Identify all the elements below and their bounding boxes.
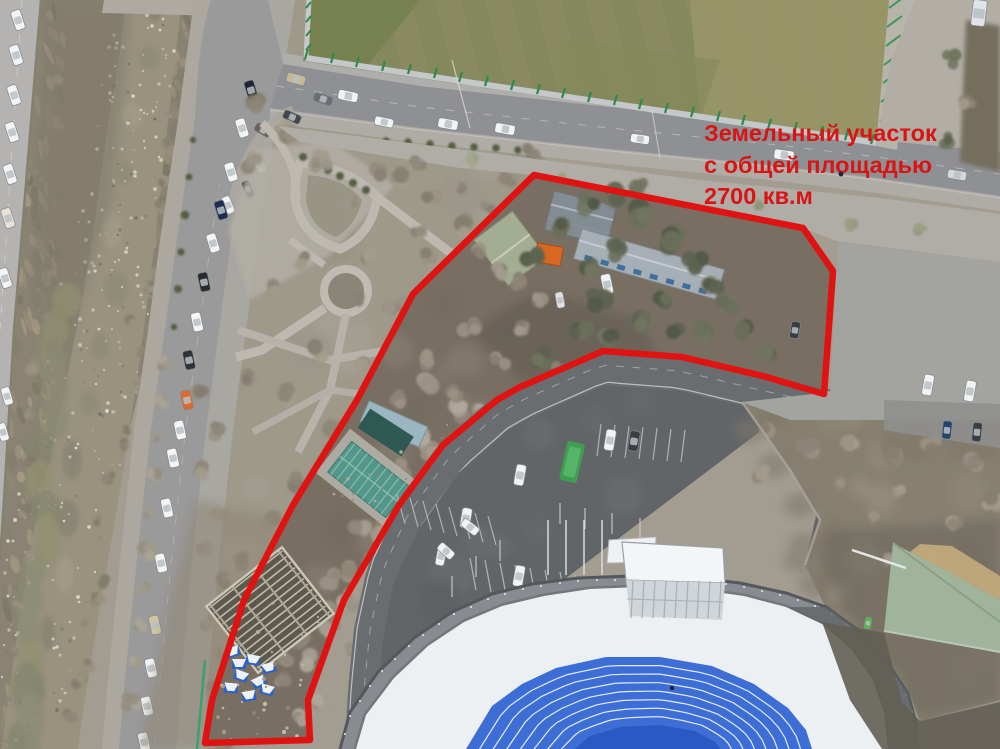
svg-text:2700 кв.м: 2700 кв.м: [704, 183, 813, 209]
svg-text:Земельный участок: Земельный участок: [704, 120, 937, 146]
svg-text:с общей площадью: с общей площадью: [704, 152, 932, 178]
